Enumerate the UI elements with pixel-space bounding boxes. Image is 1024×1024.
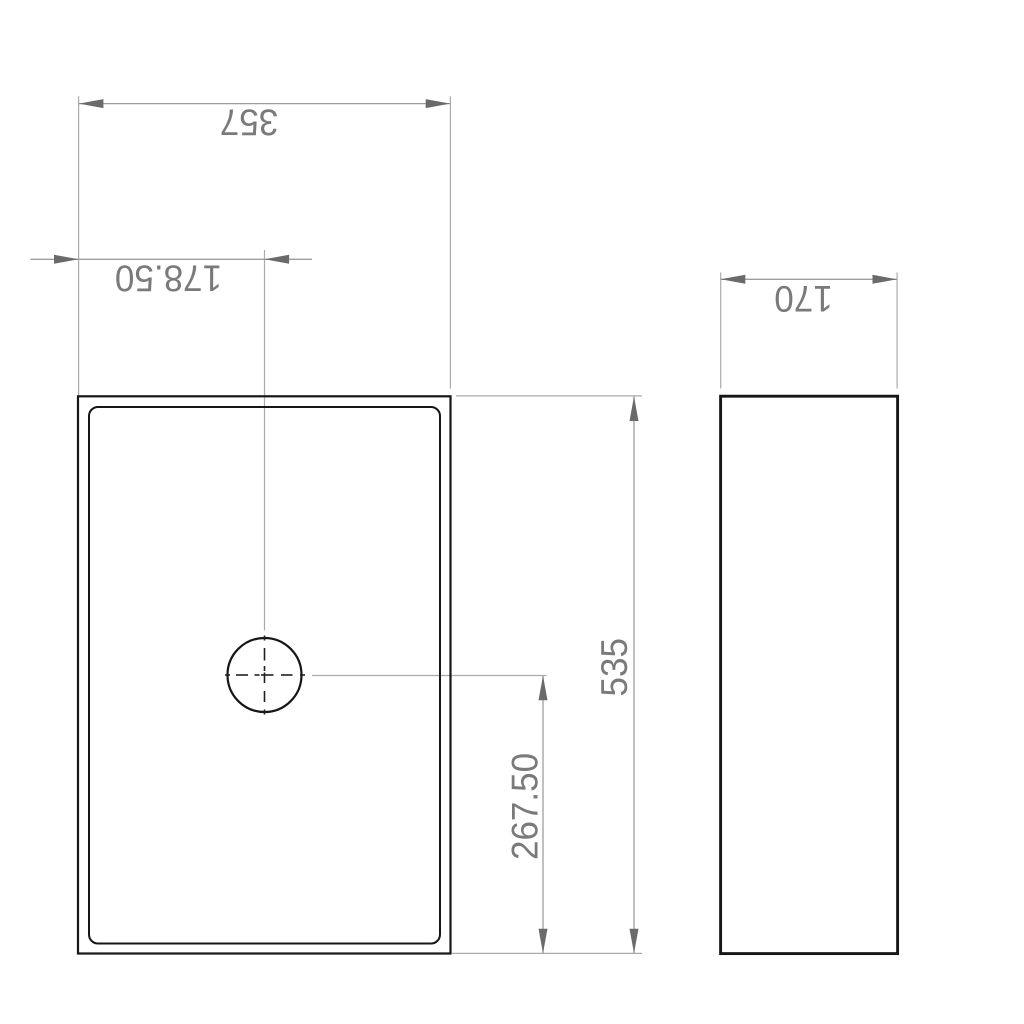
svg-text:535: 535	[593, 638, 635, 696]
svg-text:170: 170	[774, 278, 832, 320]
svg-text:357: 357	[220, 101, 278, 143]
svg-text:178.50: 178.50	[115, 257, 222, 299]
svg-text:267.50: 267.50	[503, 753, 545, 860]
